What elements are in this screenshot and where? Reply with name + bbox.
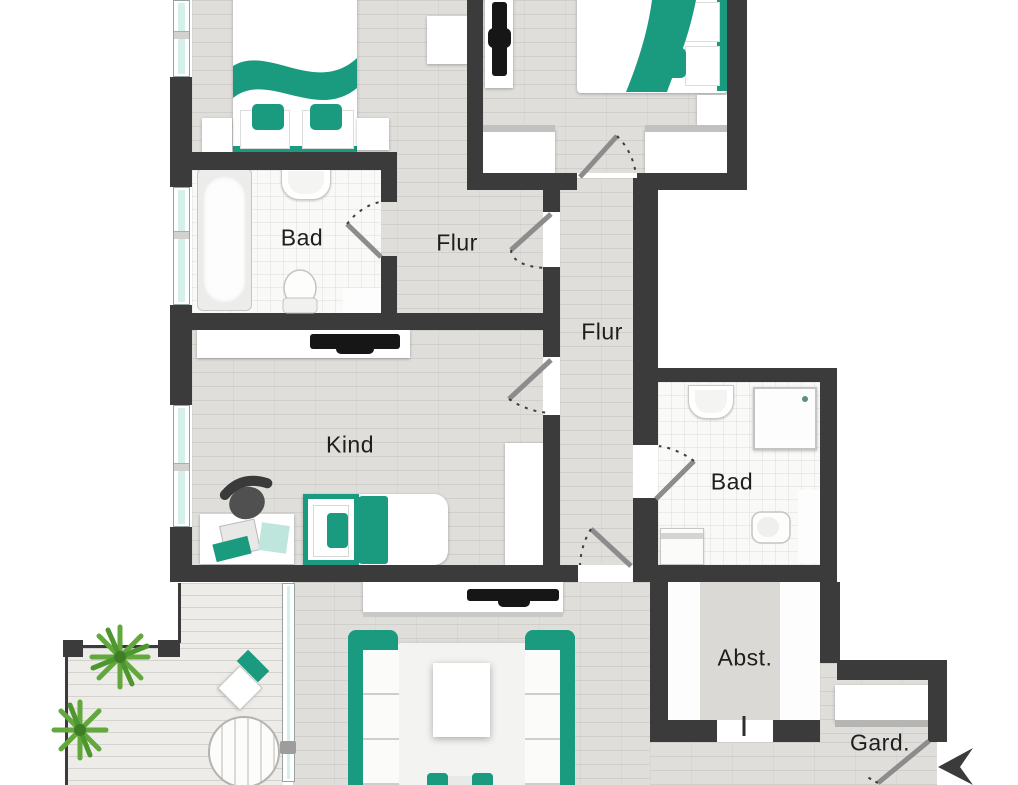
window-child bbox=[173, 405, 190, 527]
tv-board-living-shadow bbox=[363, 612, 563, 617]
washing-machine-panel bbox=[661, 533, 703, 539]
room-label-bath-left: Bad bbox=[281, 225, 323, 252]
wall-storage-west bbox=[650, 582, 668, 742]
window-bath-left bbox=[173, 187, 190, 305]
nightstand-2 bbox=[697, 95, 727, 125]
sofa-bottom-right-arm bbox=[472, 773, 493, 785]
wall-living-top-left bbox=[170, 565, 578, 582]
bed2-cushion-top bbox=[652, 4, 686, 34]
bathtub-basin bbox=[203, 176, 246, 303]
coffee-table bbox=[433, 663, 490, 737]
sink-bath-right-basin bbox=[695, 390, 727, 413]
nightstand-1-left bbox=[202, 118, 232, 152]
window-child-divider bbox=[174, 463, 189, 471]
desk-pad-teal bbox=[258, 522, 290, 554]
wall-gard-east bbox=[928, 660, 947, 742]
wall-bedroom2-right bbox=[727, 0, 747, 190]
terrace-edge-top bbox=[83, 645, 160, 648]
wall-hall-right-lower bbox=[633, 498, 658, 565]
wall-bath1-right-bottom bbox=[381, 256, 397, 313]
bath-right-niche bbox=[798, 490, 820, 563]
sofa-bottom-seat bbox=[448, 776, 472, 785]
wall-storage-bottom-left bbox=[650, 720, 717, 742]
room-label-hall-lower: Flur bbox=[581, 319, 623, 346]
bed1-cushion-right bbox=[310, 104, 342, 130]
room-label-child: Kind bbox=[326, 432, 374, 459]
tv-bedroom2-mount bbox=[488, 28, 511, 48]
wall-mid-c bbox=[543, 415, 560, 565]
bed2-cushion-bottom bbox=[652, 48, 686, 78]
bed2-pillow-top bbox=[685, 2, 720, 42]
room-label-storage: Abst. bbox=[718, 645, 773, 672]
wall-bath2-right bbox=[820, 368, 837, 565]
sofa-right-back bbox=[560, 636, 575, 785]
wardrobe-child bbox=[505, 443, 545, 565]
terrace-wall-nub-left bbox=[63, 640, 83, 657]
sofa-left-cushions bbox=[363, 650, 399, 785]
sideboard-bedroom2-left bbox=[483, 128, 555, 173]
bed2-pillow-bottom bbox=[685, 46, 720, 86]
window-bath-left-divider bbox=[174, 231, 189, 239]
entry-arrow-icon bbox=[938, 748, 973, 785]
wall-bath1-right-top bbox=[381, 152, 397, 202]
bed1-cushion-left bbox=[252, 104, 284, 130]
tv-child-mount bbox=[336, 340, 374, 354]
wall-mid-a bbox=[543, 182, 560, 212]
wall-storage-bottom-right bbox=[773, 720, 820, 742]
bath-left-niche bbox=[343, 288, 381, 313]
child-bed-blanket bbox=[355, 496, 388, 564]
terrace-deck-upper bbox=[180, 583, 283, 648]
nightstand-1-right bbox=[357, 118, 389, 150]
sideboard-bedroom2-right-edge bbox=[645, 125, 727, 132]
window-bedroom1 bbox=[173, 0, 190, 77]
floor-plan: Bad Flur Flur Kind Bad Abst. Gard. bbox=[0, 0, 1018, 785]
wall-hall-right-upper bbox=[633, 178, 658, 445]
tv-living-mount bbox=[498, 594, 530, 607]
wardrobe-gard bbox=[835, 685, 928, 722]
terrace-door-handle bbox=[280, 741, 296, 754]
room-label-bath-right: Bad bbox=[711, 469, 753, 496]
sofa-bottom-left-arm bbox=[427, 773, 448, 785]
terrace-edge-step bbox=[178, 583, 181, 643]
wardrobe-gard-front bbox=[835, 720, 928, 727]
wall-hall-bedroom2 bbox=[467, 0, 483, 173]
sink-bath-left-basin bbox=[288, 171, 324, 194]
wall-child-top bbox=[170, 313, 560, 330]
wall-storage-east bbox=[820, 582, 840, 663]
wall-living-top-right bbox=[633, 565, 837, 582]
child-bed-cushion bbox=[327, 513, 348, 548]
wall-ext-left-1 bbox=[170, 77, 192, 187]
room-label-wardrobe: Gard. bbox=[850, 730, 910, 757]
wall-bath2-top bbox=[658, 368, 837, 382]
floor-lower-hall bbox=[560, 178, 633, 565]
sideboard-bedroom2-left-edge bbox=[483, 125, 555, 132]
terrace-wall-nub-right bbox=[158, 640, 180, 657]
sideboard-bedroom2-right bbox=[645, 128, 727, 173]
sofa-left-back bbox=[348, 636, 363, 785]
shower-drain bbox=[802, 396, 808, 402]
sofa-right-cushions bbox=[525, 650, 560, 785]
terrace-edge-left bbox=[65, 648, 68, 785]
room-label-hall-upper: Flur bbox=[436, 230, 478, 257]
window-bedroom1-divider bbox=[174, 31, 189, 39]
hall-cabinet bbox=[427, 16, 469, 64]
wall-bedroom2-bottom-left bbox=[467, 173, 577, 190]
round-table bbox=[208, 716, 280, 785]
wall-mid-b bbox=[543, 267, 560, 357]
wall-bath1-top bbox=[170, 152, 397, 170]
window-bath-left-glass bbox=[178, 190, 185, 302]
